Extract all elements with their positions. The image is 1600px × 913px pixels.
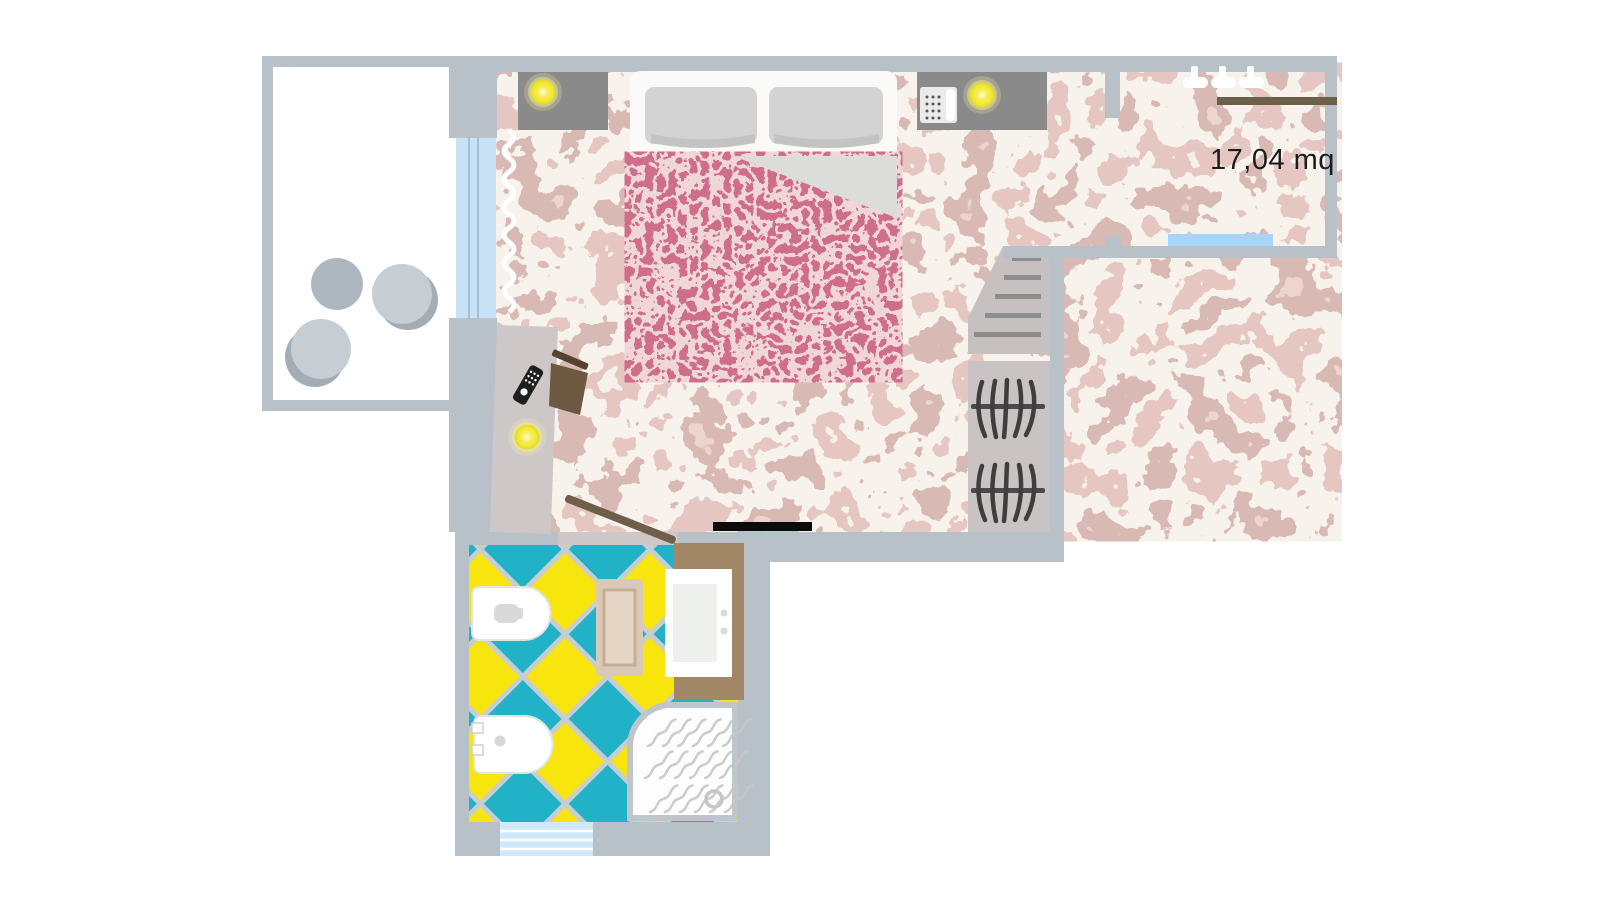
toilet [472,587,551,640]
shower [630,705,752,818]
double-bed [630,71,897,378]
floor-plan-drawing [0,0,1600,913]
balcony-chair-1 [372,264,432,324]
wall-door-stub [1105,72,1120,118]
coat-hooks [1183,66,1264,88]
sink-vanity [665,543,744,700]
pillow-left [645,87,757,144]
balcony-furniture [285,258,438,387]
bidet [472,716,553,773]
wall-left-upper [449,56,497,138]
wall-balcony-bottom [262,400,460,411]
wall-left-lower [449,318,497,532]
floor-lamp [508,418,546,456]
bedside-lamp-left [524,73,562,111]
wall-balcony-top [262,56,455,67]
wall-corridor-notch [1105,236,1121,246]
wall-bathroom-left [455,532,469,856]
balcony-chair-2 [291,319,351,379]
sink-basin [673,584,717,662]
sink-knob-2 [721,628,728,635]
pillow-right [769,87,883,144]
bath-mat [596,579,643,676]
telephone [920,87,957,123]
bathroom-window [500,822,593,856]
area-label: 17,04 mq [1210,144,1335,177]
wall-top-main [449,56,1337,72]
entrance-bar [713,522,812,531]
wall-balcony-left [262,56,273,411]
bedroom-floor [497,72,1325,532]
balcony-table [311,258,363,310]
bedside-lamp-right [963,76,1001,114]
clothes-rail [1217,97,1337,105]
corridor-window [1168,234,1273,246]
wall-bathroom-top [455,532,558,545]
wardrobe [968,361,1050,532]
wall-corridor-bottom [1003,246,1337,258]
sink-knob-1 [721,610,728,617]
wall-closet-right [1050,246,1064,562]
balcony-window [456,138,496,318]
floor-plan-page: 17,04 mq [0,0,1600,913]
